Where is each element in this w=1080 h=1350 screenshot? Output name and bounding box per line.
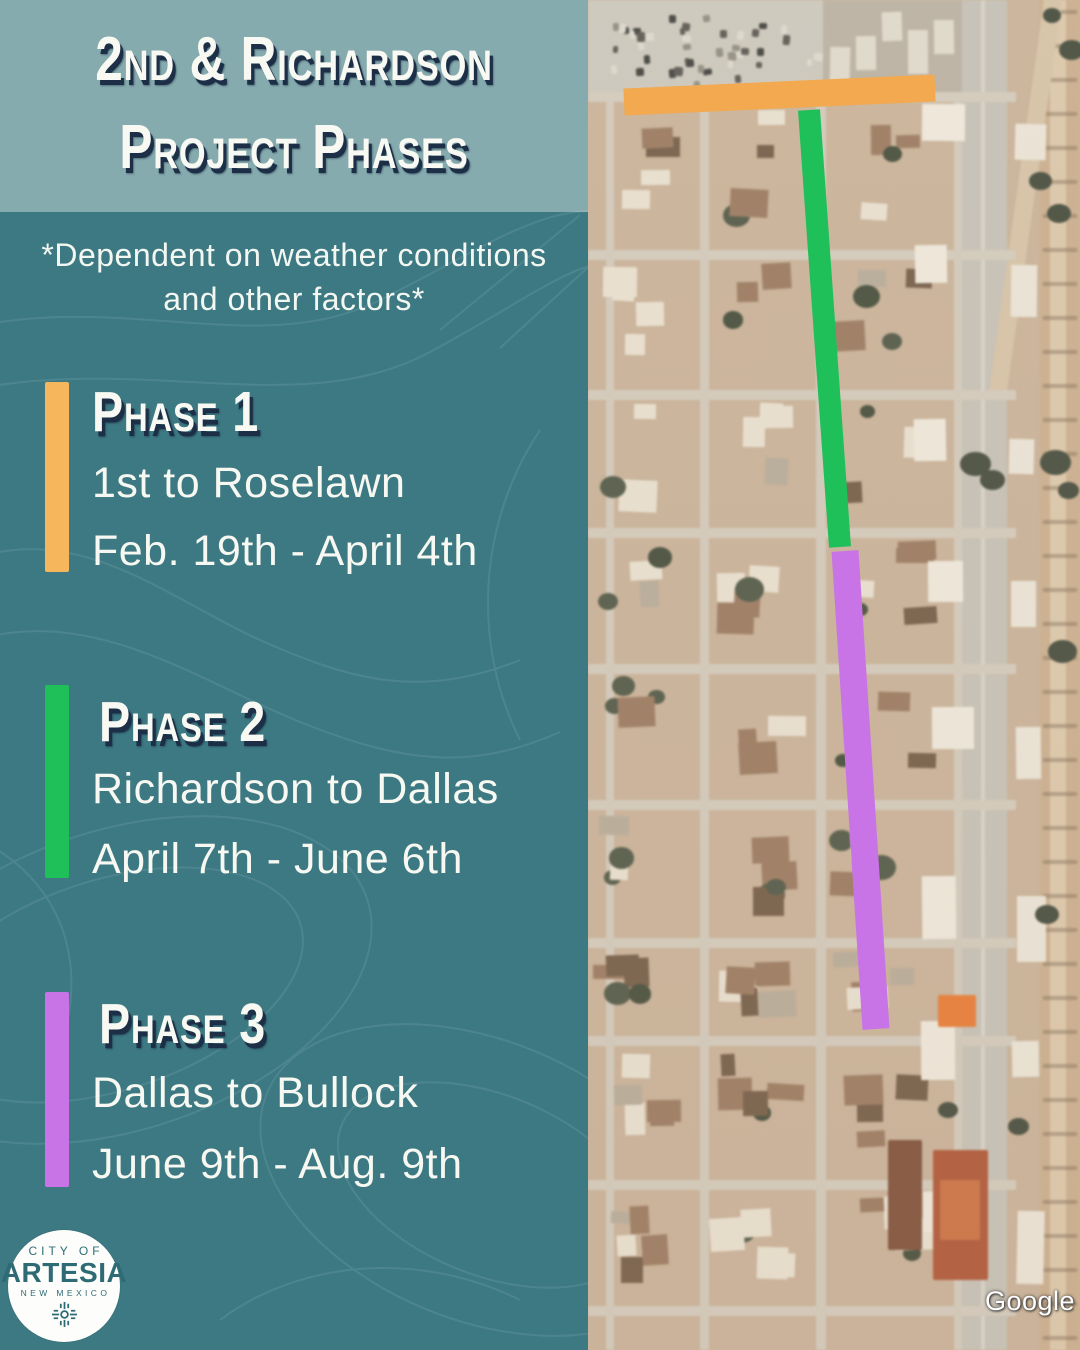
phase-3-segment: Dallas to Bullock: [92, 1069, 418, 1118]
phase-2-dates: April 7th - June 6th: [92, 835, 463, 884]
logo-new-mexico: NEW MEXICO: [21, 1288, 111, 1298]
disclaimer-line-1: *Dependent on weather conditions: [0, 233, 588, 277]
logo-artesia: ARTESIA: [1, 1258, 127, 1288]
zia-sun-icon: [51, 1301, 78, 1328]
phase-1-segment: 1st to Roselawn: [92, 459, 405, 508]
title-line-2: Project Phases: [59, 104, 529, 192]
satellite-map: Google: [588, 0, 1080, 1350]
artesia-city-logo: CITY OF ARTESIA NEW MEXICO: [8, 1230, 120, 1342]
route-overlay-phase-3: [845, 551, 876, 1029]
phase-2-heading: Phase 2: [99, 689, 266, 755]
phase-2-color-bar: [45, 685, 69, 878]
phase-1-color-bar: [45, 382, 69, 572]
disclaimer-note: *Dependent on weather conditions and oth…: [0, 233, 588, 321]
poster-canvas: 2nd & Richardson Project Phases *Depende…: [0, 0, 1080, 1350]
phase-3-heading: Phase 3: [99, 991, 266, 1057]
title-line-1: 2nd & Richardson: [59, 16, 529, 104]
poster-title: 2nd & Richardson Project Phases: [0, 16, 588, 192]
disclaimer-line-2: and other factors*: [0, 277, 588, 321]
route-overlay-phase-2: [809, 110, 840, 547]
phase-1-heading: Phase 1: [92, 379, 259, 445]
phase-2-segment: Richardson to Dallas: [92, 765, 499, 814]
phase-3-dates: June 9th - Aug. 9th: [92, 1140, 463, 1189]
info-panel: 2nd & Richardson Project Phases *Depende…: [0, 0, 588, 1350]
google-attribution: Google: [985, 1286, 1075, 1317]
route-overlay-phase-1: [624, 88, 935, 102]
phase-1-dates: Feb. 19th - April 4th: [92, 527, 478, 576]
logo-city-of: CITY OF: [28, 1244, 103, 1258]
route-overlays: [588, 0, 1080, 1350]
phase-3-color-bar: [45, 992, 69, 1187]
